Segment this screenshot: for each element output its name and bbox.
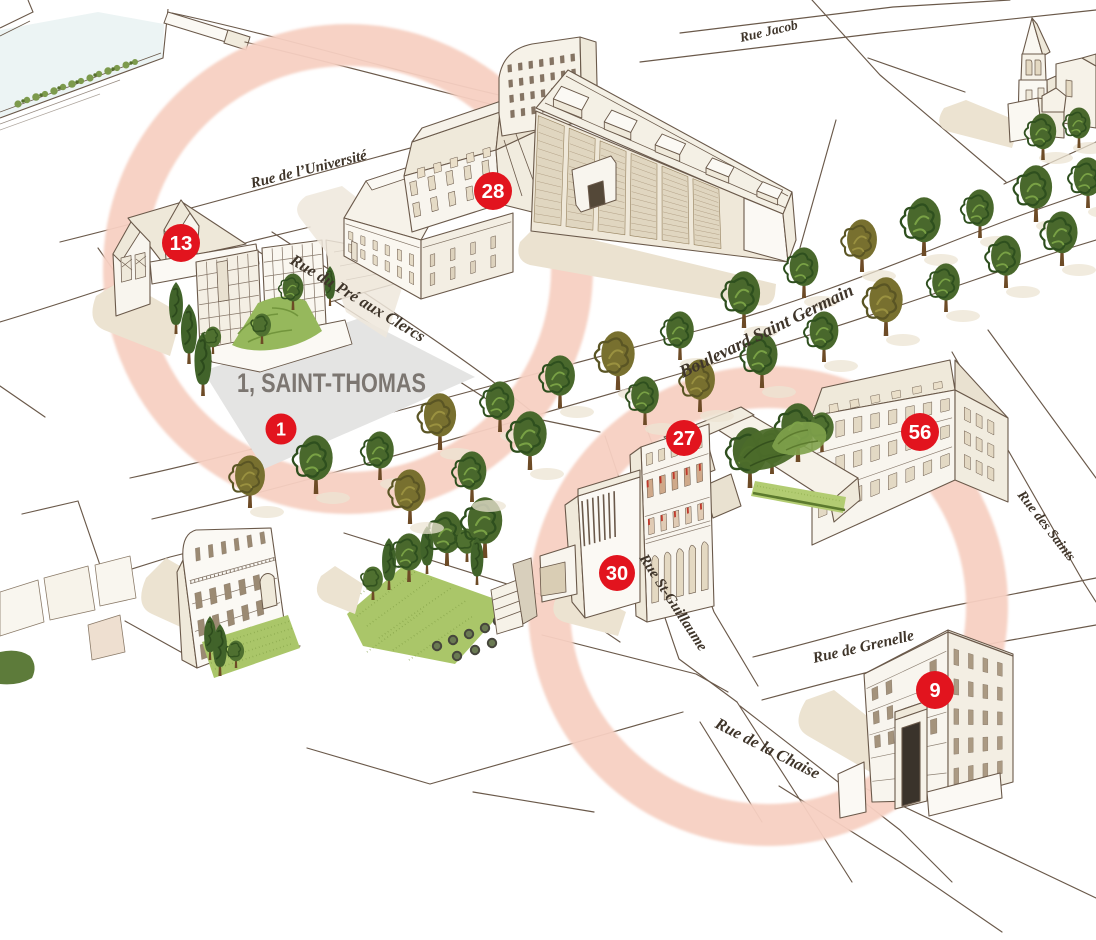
svg-text:1: 1 <box>276 420 286 440</box>
svg-text:56: 56 <box>909 421 932 444</box>
svg-text:1, SAINT-THOMAS: 1, SAINT-THOMAS <box>237 368 426 398</box>
svg-text:9: 9 <box>929 680 940 702</box>
svg-text:13: 13 <box>170 232 193 255</box>
svg-text:30: 30 <box>606 563 628 585</box>
svg-text:27: 27 <box>673 428 695 450</box>
svg-text:28: 28 <box>482 180 505 203</box>
